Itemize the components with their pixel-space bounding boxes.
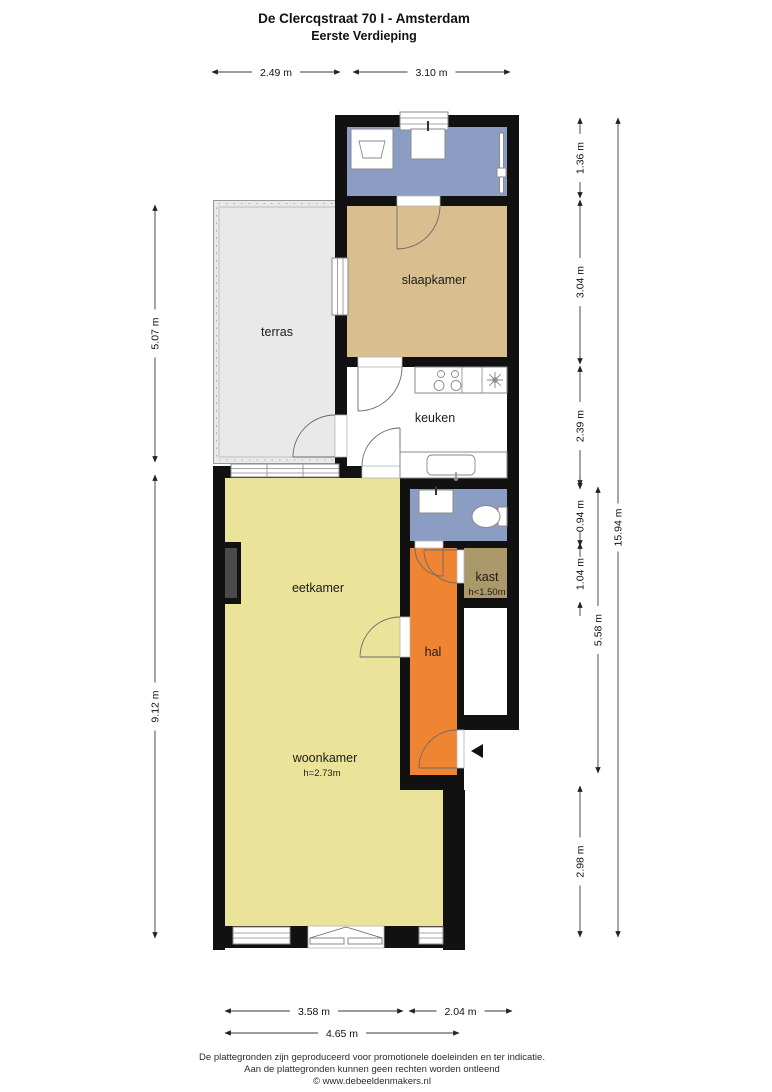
svg-text:4.65 m: 4.65 m (326, 1028, 358, 1040)
dim-top-2: 3.10 m (353, 66, 510, 80)
svg-text:2.98 m: 2.98 m (575, 845, 587, 877)
eetkamer-window (231, 464, 339, 477)
svg-text:1.36 m: 1.36 m (575, 142, 587, 174)
woonkamer-window-left (233, 927, 290, 944)
dim-right-5: 1.04 m (575, 532, 587, 616)
extractor-fan-icon (487, 372, 503, 388)
dim-right-4: 0.94 m (575, 475, 587, 557)
dim-right-total: 15.94 m (612, 118, 625, 937)
page-title: De Clercqstraat 70 I - Amsterdam (258, 11, 470, 26)
svg-text:15.94 m: 15.94 m (613, 508, 625, 546)
slaapkamer-label: slaapkamer (402, 273, 467, 287)
dim-left-1: 5.07 m (149, 205, 162, 462)
page-subtitle: Eerste Verdieping (311, 29, 417, 43)
floorplan-drawing: De Clercqstraat 70 I - Amsterdam Eerste … (0, 0, 772, 1092)
entrance-arrow-icon (471, 744, 483, 758)
svg-text:3.58 m: 3.58 m (298, 1006, 330, 1018)
dim-bottom-2: 2.04 m (409, 1005, 512, 1019)
plan-title: De Clercqstraat 70 I - Amsterdam Eerste … (258, 11, 470, 43)
woonkamer-height-note: h=2.73m (303, 768, 340, 779)
dim-right-1: 1.36 m (574, 118, 587, 198)
hal-label: hal (425, 645, 442, 659)
washing-machine-icon (351, 129, 393, 169)
dim-right-3: 2.39 m (574, 366, 587, 486)
svg-text:0.94 m: 0.94 m (575, 500, 587, 532)
chimney-breast (221, 542, 241, 604)
badkamer-window (400, 112, 448, 130)
dim-right-6: 5.58 m (592, 487, 605, 773)
terras-label: terras (261, 325, 293, 339)
trappenhuis-floor (464, 608, 507, 715)
svg-text:5.07 m: 5.07 m (150, 317, 162, 349)
footer-line-2: Aan de plattegronden kunnen geen rechten… (244, 1064, 500, 1075)
toilet-sink-icon (419, 486, 453, 513)
woonkamer-window-right (419, 927, 443, 944)
dim-left-2: 9.12 m (149, 475, 162, 938)
footer-disclaimer: De plattegronden zijn geproduceerd voor … (199, 1052, 545, 1087)
svg-text:5.58 m: 5.58 m (593, 614, 605, 646)
floorplan-page: De Clercqstraat 70 I - Amsterdam Eerste … (0, 0, 772, 1092)
keuken-label: keuken (415, 411, 455, 425)
svg-text:1.04 m: 1.04 m (575, 558, 587, 590)
svg-text:2.39 m: 2.39 m (575, 410, 587, 442)
balcony-french-doors (308, 926, 384, 948)
toilet-icon (472, 506, 507, 528)
svg-text:3.10 m: 3.10 m (415, 67, 447, 79)
kitchen-counter-top (415, 367, 507, 393)
svg-text:2.49 m: 2.49 m (260, 67, 292, 79)
kast-height-note: h<1.50m (468, 587, 505, 598)
slaapkamer-window (332, 258, 348, 315)
footer-copyright: © www.debeeldenmakers.nl (313, 1076, 431, 1087)
footer-line-1: De plattegronden zijn geproduceerd voor … (199, 1052, 545, 1063)
dim-bottom-total: 4.65 m (225, 1027, 459, 1041)
dim-bottom-1: 3.58 m (225, 1005, 403, 1019)
dim-right-7: 2.98 m (574, 786, 587, 937)
kitchen-counter-sink (400, 452, 507, 481)
dim-right-2: 3.04 m (574, 200, 587, 364)
eetkamer-label: eetkamer (292, 581, 344, 595)
kast-label: kast (476, 570, 499, 584)
woonkamer-label: woonkamer (292, 751, 358, 765)
dim-top-1: 2.49 m (212, 66, 340, 80)
svg-text:2.04 m: 2.04 m (444, 1006, 476, 1018)
svg-text:9.12 m: 9.12 m (150, 690, 162, 722)
svg-text:3.04 m: 3.04 m (575, 266, 587, 298)
